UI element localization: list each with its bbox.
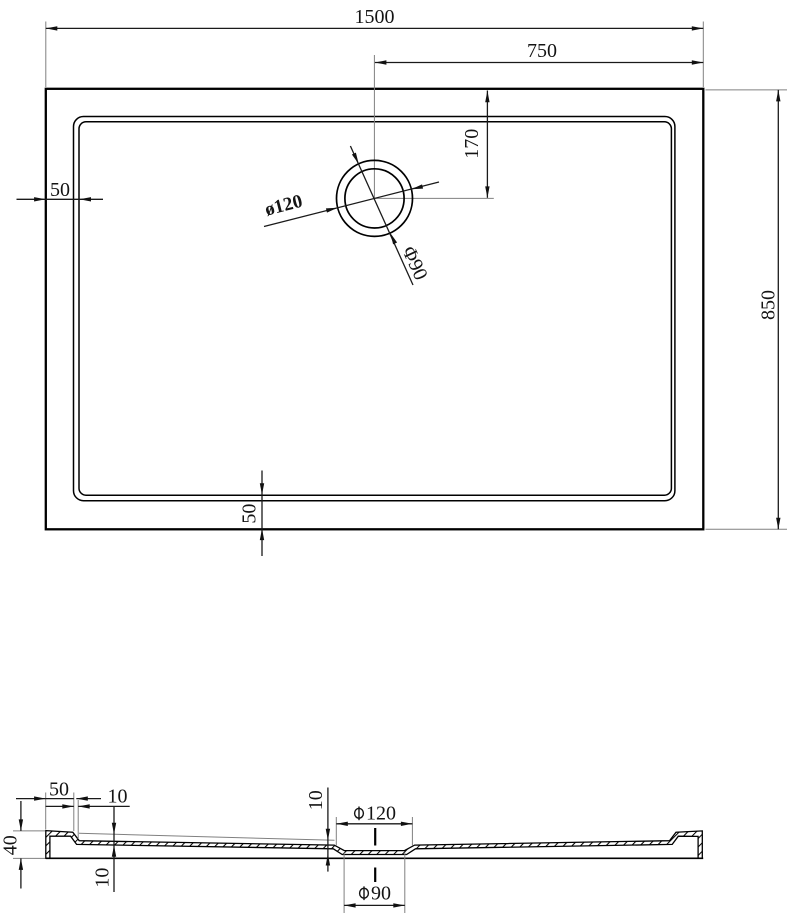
svg-text:1500: 1500 [355,6,395,28]
svg-text:10: 10 [108,786,128,808]
svg-text:750: 750 [527,40,557,62]
svg-text:850: 850 [758,290,780,320]
svg-text:50: 50 [50,179,70,201]
svg-text:10: 10 [92,868,114,888]
svg-text:50: 50 [238,504,260,524]
svg-text:120: 120 [366,803,396,825]
svg-text:50: 50 [49,779,69,801]
svg-text:90: 90 [371,883,391,905]
svg-text:10: 10 [305,790,327,810]
svg-text:40: 40 [0,835,22,855]
svg-text:170: 170 [461,129,483,159]
